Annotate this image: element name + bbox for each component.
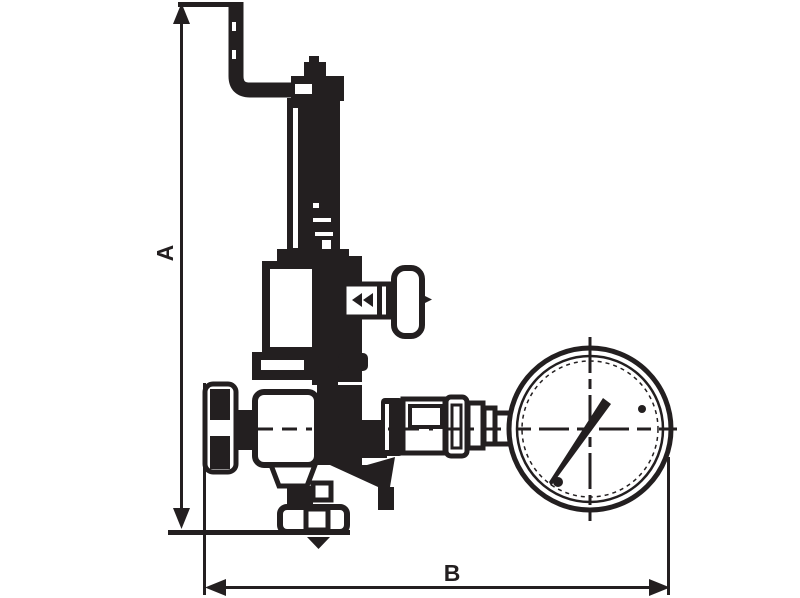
knob-tip: [421, 294, 432, 305]
union-highlight: [385, 404, 389, 450]
bottom-outlet: [271, 465, 347, 549]
union-nut-facet: [410, 406, 442, 427]
union-dark-ring: [381, 398, 403, 456]
stem-passage: [313, 483, 331, 500]
flange-right-block: [312, 352, 338, 385]
needle-hub: [553, 477, 563, 487]
dial-pin: [638, 405, 646, 413]
pressure-gauge-dial: [509, 337, 677, 521]
dim-a-arrow-down-icon: [173, 508, 190, 529]
technical-drawing: A B: [0, 0, 800, 598]
dim-b-line: [220, 586, 656, 589]
dim-a-label: A: [152, 245, 178, 262]
stem-nub: [304, 62, 326, 78]
downward-flow-arrow-icon: [307, 537, 330, 549]
thread-mark: [313, 203, 319, 208]
outlet-flange-hub: [306, 509, 328, 530]
threaded-adjusting-stem: [287, 56, 344, 254]
drain-tail: [378, 487, 394, 510]
valve-drawing-svg: A B: [0, 0, 800, 598]
thread-mark: [315, 232, 333, 236]
inlet-connector: [237, 410, 255, 450]
dim-b-right-extension-line: [667, 457, 670, 595]
union-flange-slot: [452, 405, 461, 448]
shaft-collar: [377, 283, 382, 317]
thread-mark: [313, 218, 331, 222]
dim-b-arrow-left-icon: [205, 579, 226, 596]
union-barrel: [468, 403, 483, 448]
shaft-collar: [386, 283, 391, 317]
dim-b-label: B: [444, 560, 461, 586]
inlet-hatch-lower: [210, 436, 230, 469]
dim-b-arrow-right-icon: [649, 579, 670, 596]
dim-a-line: [180, 16, 183, 516]
spring-tube-highlight: [293, 108, 298, 248]
outlet-funnel: [271, 465, 315, 486]
flange-nub: [338, 353, 368, 371]
flange-slot: [261, 360, 304, 370]
handle-highlight: [232, 50, 236, 59]
inlet-port: [205, 384, 255, 472]
stem-nut-highlight: [295, 84, 312, 94]
inlet-hatch-upper: [210, 389, 230, 420]
t-handle-knob: [394, 268, 422, 336]
handle-highlight: [232, 22, 236, 31]
